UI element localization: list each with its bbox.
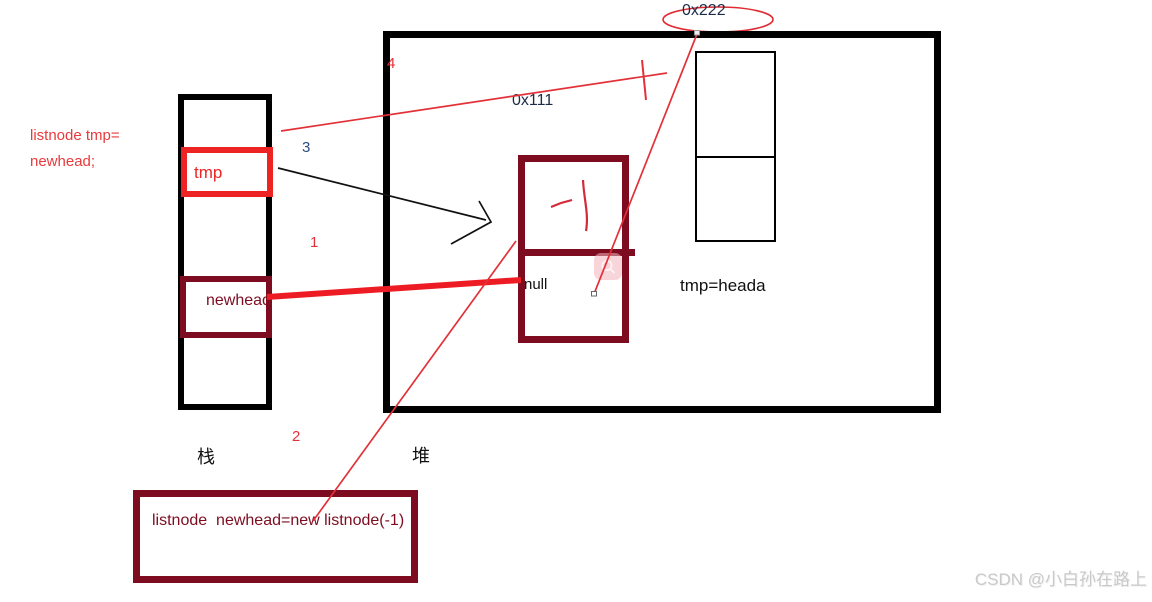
heada-node-rect (695, 51, 776, 242)
stack-caption: 栈 (197, 447, 215, 468)
step-number-4: 4 (387, 55, 395, 72)
linked-list-diagram: tmp newhead listnode newhead=new listnod… (0, 0, 1152, 602)
stack-cell-tmp: tmp (181, 147, 273, 197)
tmp-label: tmp (194, 163, 222, 183)
bottom-code-text: listnode newhead=new listnode(-1) (152, 512, 404, 530)
stack-cell-newhead: newhead (180, 276, 272, 338)
address-0x222: 0x222 (682, 2, 726, 20)
newhead-label: newhead (206, 292, 271, 310)
step-number-3: 3 (302, 139, 310, 156)
left-code-line2: newhead; (30, 153, 95, 170)
tmp-heada-note: tmp=heada (680, 276, 766, 296)
step-number-2: 2 (292, 428, 300, 445)
address-0x111: 0x111 (512, 92, 553, 110)
heap-rect (383, 31, 941, 413)
null-label: null (524, 276, 547, 293)
csdn-watermark: CSDN @小白孙在路上 (897, 570, 1147, 590)
step-number-1: 1 (310, 234, 318, 251)
bottom-code-box: listnode newhead=new listnode(-1) (133, 490, 418, 583)
left-code-line1: listnode tmp= (30, 127, 120, 144)
heada-node-divider (697, 156, 774, 158)
stack-rect (178, 94, 272, 410)
heap-caption: 堆 (412, 446, 430, 467)
magnifier-icon[interactable] (594, 253, 622, 280)
